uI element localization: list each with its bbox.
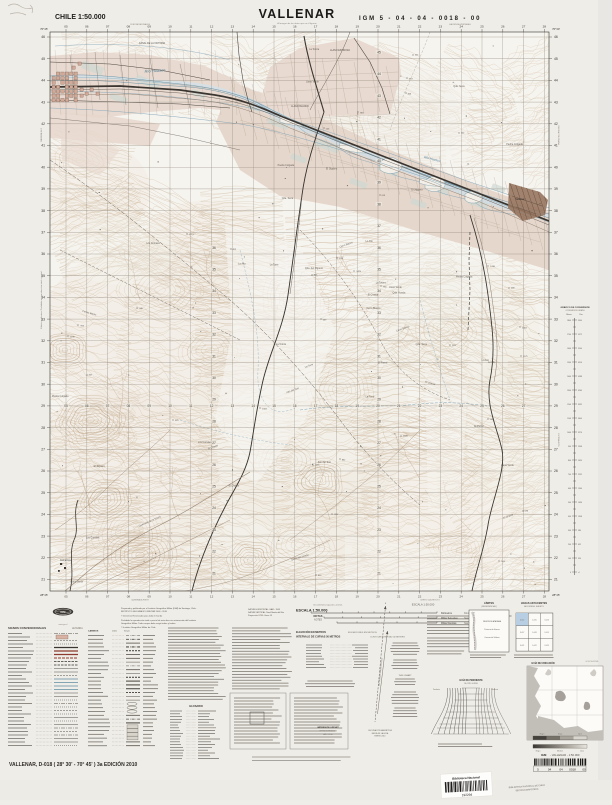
- svg-text:13: 13: [231, 25, 235, 29]
- svg-text:12: 12: [210, 25, 214, 29]
- svg-text:19: 19: [356, 595, 360, 599]
- svg-text:22: 22: [212, 550, 216, 554]
- svg-text:GUÍA DE PENDIENTE: GUÍA DE PENDIENTE: [459, 679, 483, 682]
- svg-text:200: 200: [568, 544, 571, 546]
- svg-text:CAMINOS: CAMINOS: [88, 630, 99, 633]
- svg-text:28: 28: [543, 25, 547, 29]
- svg-text:El Chanar: El Chanar: [229, 485, 240, 488]
- svg-text:Llano Verde: Llano Verde: [306, 80, 319, 83]
- svg-text:D-018: D-018: [532, 632, 536, 634]
- svg-text:400: 400: [568, 516, 571, 518]
- svg-text:24: 24: [554, 513, 558, 517]
- svg-text:21: 21: [41, 578, 45, 582]
- svg-text:19: 19: [355, 25, 359, 29]
- svg-text:07: 07: [106, 404, 110, 408]
- svg-text:37: 37: [41, 231, 45, 235]
- svg-text:Millas Terrestres: Millas Terrestres: [441, 617, 459, 620]
- svg-text:28°45': 28°45': [552, 593, 560, 597]
- svg-text:El Jilguero: El Jilguero: [326, 167, 338, 170]
- svg-text:INSTITUTO GEOGRÁFICO MILITAR 2: INSTITUTO GEOGRÁFICO MILITAR 2009 - 2010: [121, 610, 168, 613]
- svg-text:La Totora: La Totora: [376, 282, 387, 285]
- svg-text:40: 40: [41, 165, 45, 169]
- svg-text:44: 44: [41, 79, 45, 83]
- svg-text:11: 11: [189, 595, 192, 599]
- svg-text:Qda. Seca: Qda. Seca: [416, 343, 428, 346]
- svg-text:16: 16: [293, 404, 297, 408]
- svg-text:ELEVACIONES EN METROS: ELEVACIONES EN METROS: [348, 631, 377, 634]
- svg-text:1800: 1800: [567, 320, 571, 322]
- svg-text:21: 21: [377, 571, 381, 575]
- svg-text:15: 15: [272, 595, 276, 599]
- svg-text:980: 980: [578, 530, 581, 532]
- svg-text:45: 45: [41, 57, 45, 61]
- svg-text:06: 06: [85, 595, 89, 599]
- svg-text:4588: 4588: [578, 376, 582, 378]
- svg-text:ESCALA 1:50.000: ESCALA 1:50.000: [296, 609, 328, 613]
- svg-text:37: 37: [554, 231, 558, 235]
- svg-text:OFFSET PRINTING: OFFSET PRINTING: [319, 731, 337, 733]
- svg-text:Lo Alto: Lo Alto: [482, 359, 490, 362]
- svg-text:06: 06: [85, 25, 89, 29]
- svg-text:70°45': 70°45': [40, 27, 48, 31]
- svg-text:© Derechos Reservados para tod: © Derechos Reservados para todo el mundo: [121, 615, 163, 618]
- svg-text:15: 15: [272, 25, 276, 29]
- svg-text:23: 23: [554, 534, 558, 538]
- svg-text:39: 39: [377, 181, 381, 185]
- svg-text:D-022: D-022: [532, 645, 536, 647]
- svg-text:17: 17: [314, 404, 318, 408]
- svg-text:Doble: Doble: [112, 631, 117, 633]
- svg-text:05: 05: [64, 25, 68, 29]
- svg-text:Kilómetros: Kilómetros: [441, 612, 453, 615]
- svg-text:THIS CHART: THIS CHART: [398, 674, 412, 677]
- svg-text:Negro: Negro: [536, 750, 541, 753]
- svg-text:LLANO ESPINOZA: LLANO ESPINOZA: [330, 49, 350, 52]
- svg-text:23: 23: [439, 595, 443, 599]
- svg-text:CUESTA PAJONALES: CUESTA PAJONALES: [130, 23, 151, 26]
- svg-text:0: 0: [570, 572, 571, 574]
- svg-text:42: 42: [377, 116, 381, 120]
- svg-text:324: 324: [578, 558, 581, 560]
- svg-text:36: 36: [41, 252, 45, 256]
- svg-text:11: 11: [189, 25, 192, 29]
- svg-text:1500: 1500: [567, 362, 571, 364]
- svg-text:ELEVACIÓN EN METROS: ELEVACIÓN EN METROS: [296, 631, 326, 634]
- svg-text:Simple: Simple: [124, 631, 130, 633]
- svg-text:04: 04: [559, 767, 563, 771]
- svg-text:19: 19: [355, 404, 359, 408]
- svg-text:05: 05: [64, 595, 68, 599]
- svg-text:24: 24: [41, 513, 45, 517]
- svg-text:1308: 1308: [578, 516, 582, 518]
- svg-text:27: 27: [522, 595, 526, 599]
- svg-text:Piedra Colgada: Piedra Colgada: [456, 276, 473, 279]
- svg-text:38: 38: [377, 202, 381, 206]
- svg-text:29: 29: [377, 398, 381, 402]
- svg-text:EL TRÁNSITO: EL TRÁNSITO: [557, 434, 560, 447]
- svg-text:42: 42: [41, 122, 45, 126]
- svg-text:0018: 0018: [569, 767, 576, 771]
- svg-text:27: 27: [377, 441, 381, 445]
- svg-text:CARRIZALILLO: CARRIZALILLO: [40, 127, 43, 142]
- svg-text:25: 25: [212, 485, 216, 489]
- svg-text:31: 31: [554, 361, 558, 365]
- svg-text:GUÍA DE UBICACIÓN: GUÍA DE UBICACIÓN: [531, 662, 554, 665]
- svg-text:La Totora: La Totora: [309, 48, 320, 51]
- svg-text:Llano Verde: Llano Verde: [389, 286, 402, 289]
- svg-text:DATUM VERTICAL: Nivel Medio de: DATUM VERTICAL: Nivel Medio del Mar: [248, 611, 284, 614]
- svg-text:NOTES: NOTES: [314, 620, 322, 622]
- svg-text:33: 33: [212, 311, 216, 315]
- svg-text:El Parral: El Parral: [378, 361, 388, 364]
- svg-text:IGM: IGM: [61, 610, 66, 614]
- svg-text:D-023: D-023: [545, 645, 549, 647]
- svg-text:1636: 1636: [578, 502, 582, 504]
- svg-text:SIGNOS CONVENCIONALES: SIGNOS CONVENCIONALES: [8, 626, 46, 630]
- svg-text:27: 27: [554, 448, 558, 452]
- svg-text:12: 12: [210, 404, 214, 408]
- svg-text:2948: 2948: [578, 446, 582, 448]
- svg-text:32: 32: [212, 333, 216, 337]
- svg-text:El Chanar: El Chanar: [368, 293, 379, 296]
- svg-text:25: 25: [480, 404, 484, 408]
- svg-text:IGM 5 - 04 - 04 - 0018 - 00: IGM 5 - 04 - 04 - 0018 - 00: [359, 16, 481, 22]
- svg-text:15: 15: [272, 404, 276, 408]
- svg-text:29: 29: [41, 404, 45, 408]
- svg-text:25: 25: [480, 595, 484, 599]
- svg-text:34: 34: [212, 289, 216, 293]
- svg-text:Geográfico Militar. Toda compr: Geográfico Militar. Toda compra debe exi…: [121, 622, 176, 625]
- svg-text:5900: 5900: [578, 320, 582, 322]
- svg-text:Camarones: Camarones: [60, 559, 73, 562]
- svg-text:45: 45: [377, 51, 381, 55]
- svg-text:CONTOUR INTERVAL 50 METERS: CONTOUR INTERVAL 50 METERS: [370, 636, 405, 639]
- svg-text:40: 40: [377, 159, 381, 163]
- svg-text:28°45': 28°45': [40, 593, 48, 597]
- svg-text:25: 25: [41, 491, 45, 495]
- svg-text:25: 25: [480, 25, 484, 29]
- svg-text:Provincia de Huasco: Provincia de Huasco: [484, 628, 500, 631]
- svg-text:652: 652: [578, 544, 581, 546]
- svg-text:17: 17: [314, 595, 318, 599]
- svg-text:Qda. Honda: Qda. Honda: [392, 292, 406, 295]
- svg-text:Al margen de los datos que en: Al margen de los datos que en él figuran: [277, 22, 317, 25]
- svg-text:24: 24: [460, 595, 464, 599]
- svg-text:DECLINACIÓN MAGNÉTICA: DECLINACIÓN MAGNÉTICA: [368, 729, 392, 732]
- svg-text:SLOPE GUIDE: SLOPE GUIDE: [464, 683, 478, 685]
- svg-text:38: 38: [41, 209, 45, 213]
- svg-text:30: 30: [41, 382, 45, 386]
- svg-text:D-021: D-021: [520, 645, 524, 647]
- svg-text:La Totora: La Totora: [276, 343, 287, 346]
- svg-text:Cerro Blanco: Cerro Blanco: [366, 307, 381, 310]
- svg-text:Edición preliminar. Prohibida: Edición preliminar. Prohibida su reprodu…: [40, 271, 43, 329]
- svg-text:28: 28: [554, 426, 558, 430]
- svg-text:2292: 2292: [578, 474, 582, 476]
- svg-text:70°30': 70°30': [552, 27, 560, 31]
- svg-text:26: 26: [554, 469, 558, 473]
- svg-text:13: 13: [231, 595, 235, 599]
- svg-text:1964: 1964: [578, 488, 582, 490]
- svg-text:25: 25: [377, 485, 381, 489]
- svg-text:IMPRESIÓN OFFSET: IMPRESIÓN OFFSET: [317, 726, 339, 729]
- svg-text:16: 16: [293, 25, 297, 29]
- svg-text:1600: 1600: [567, 348, 571, 350]
- svg-text:28: 28: [212, 419, 216, 423]
- svg-text:Llano Verde: Llano Verde: [501, 464, 514, 467]
- svg-text:00: 00: [582, 767, 586, 771]
- svg-text:900: 900: [568, 446, 571, 448]
- svg-text:Qda. del Jilguero: Qda. del Jilguero: [305, 267, 324, 270]
- svg-text:10: 10: [168, 595, 172, 599]
- svg-text:46: 46: [41, 35, 45, 39]
- svg-text:HOJAS ADYACENTES: HOJAS ADYACENTES: [521, 602, 548, 605]
- svg-text:Llano Verde: Llano Verde: [70, 581, 83, 584]
- svg-text:34: 34: [554, 296, 558, 300]
- svg-text:5244: 5244: [578, 348, 582, 350]
- svg-text:39: 39: [554, 187, 558, 191]
- svg-text:22: 22: [41, 556, 45, 560]
- svg-text:14: 14: [251, 404, 255, 408]
- svg-text:33: 33: [554, 317, 558, 321]
- svg-text:31: 31: [377, 354, 381, 358]
- svg-text:- VALLENAR - 1:50.000: - VALLENAR - 1:50.000: [550, 753, 580, 757]
- svg-text:28: 28: [377, 419, 381, 423]
- svg-text:24: 24: [377, 506, 381, 510]
- svg-text:1000: 1000: [567, 432, 571, 434]
- svg-text:Los Corrales: Los Corrales: [198, 441, 212, 444]
- svg-text:18: 18: [335, 404, 339, 408]
- svg-text:700: 700: [568, 474, 571, 476]
- svg-text:1100: 1100: [567, 418, 571, 420]
- svg-text:27: 27: [41, 448, 45, 452]
- svg-text:1400: 1400: [567, 376, 571, 378]
- svg-text:CERRO CACHIYUYO: CERRO CACHIYUYO: [420, 599, 440, 602]
- svg-text:20: 20: [376, 25, 380, 29]
- svg-text:LÍMITES: LÍMITES: [484, 602, 494, 605]
- svg-text:40: 40: [554, 165, 558, 169]
- svg-text:26: 26: [501, 25, 505, 29]
- svg-text:23: 23: [377, 528, 381, 532]
- svg-text:36: 36: [212, 246, 216, 250]
- svg-text:11: 11: [189, 404, 193, 408]
- svg-text:32: 32: [554, 339, 558, 343]
- svg-text:IGM: IGM: [541, 753, 547, 757]
- svg-text:27: 27: [522, 404, 526, 408]
- svg-text:29: 29: [212, 398, 216, 402]
- svg-text:Los Corrales: Los Corrales: [146, 242, 160, 245]
- svg-text:31: 31: [41, 361, 45, 365]
- svg-text:Pies: Pies: [579, 314, 582, 316]
- svg-text:45: 45: [554, 57, 558, 61]
- svg-text:MEDIA DE LA HOJA: MEDIA DE LA HOJA: [372, 732, 389, 735]
- svg-text:LLANO BLANCO: LLANO BLANCO: [291, 105, 309, 108]
- svg-text:32: 32: [377, 333, 381, 337]
- svg-text:30: 30: [377, 376, 381, 380]
- svg-text:800: 800: [568, 460, 571, 462]
- svg-text:500: 500: [568, 502, 571, 504]
- svg-text:El Jilguero: El Jilguero: [94, 465, 106, 468]
- svg-text:DATUM HORIZONTAL: SAM - 1969: DATUM HORIZONTAL: SAM - 1969: [248, 608, 281, 611]
- svg-text:HACIENDA VENTANAS: HACIENDA VENTANAS: [449, 23, 471, 26]
- svg-text:Piedra Colgada: Piedra Colgada: [52, 395, 69, 398]
- svg-text:Proyección UTM - Huso 19: Proyección UTM - Huso 19: [248, 615, 273, 617]
- svg-text:LEYENDA: LEYENDA: [72, 627, 83, 630]
- svg-text:600: 600: [568, 488, 571, 490]
- svg-text:25: 25: [554, 491, 558, 495]
- svg-text:INTERVALO DE CURVAS 50 METROS: INTERVALO DE CURVAS 50 METROS: [296, 636, 341, 639]
- svg-text:35: 35: [554, 274, 558, 278]
- svg-text:Los Corrales: Los Corrales: [86, 537, 100, 540]
- svg-text:13: 13: [231, 404, 235, 408]
- svg-text:La Torre: La Torre: [270, 263, 279, 266]
- svg-text:26: 26: [41, 469, 45, 473]
- svg-text:La Torre: La Torre: [366, 395, 375, 398]
- svg-text:24: 24: [459, 404, 463, 408]
- svg-text:16: 16: [293, 595, 297, 599]
- svg-text:14: 14: [252, 595, 256, 599]
- svg-text:07: 07: [106, 595, 110, 599]
- svg-text:18: 18: [335, 595, 339, 599]
- svg-text:© Instituto Geográfico Militar: © Instituto Geográfico Militar de Chile: [121, 626, 156, 629]
- svg-text:08: 08: [127, 595, 131, 599]
- svg-text:09: 09: [148, 595, 152, 599]
- svg-text:46: 46: [554, 35, 558, 39]
- svg-text:26: 26: [501, 595, 505, 599]
- svg-text:26: 26: [212, 463, 216, 467]
- svg-text:31: 31: [212, 354, 216, 358]
- svg-text:Piedra Colgada: Piedra Colgada: [506, 143, 523, 146]
- svg-text:Qda. Seca: Qda. Seca: [282, 197, 294, 200]
- svg-text:29: 29: [554, 404, 558, 408]
- svg-text:30: 30: [554, 382, 558, 386]
- svg-text:Un centímetro equivale a 0,5 k: Un centímetro equivale a 0,5 km.: [313, 604, 343, 607]
- svg-text:3276: 3276: [578, 432, 582, 434]
- svg-text:35: 35: [212, 268, 216, 272]
- svg-text:D-017: D-017: [520, 632, 524, 634]
- svg-text:06: 06: [85, 404, 89, 408]
- svg-text:(REFERENCIAL): (REFERENCIAL): [481, 605, 497, 608]
- svg-text:100: 100: [568, 558, 571, 560]
- svg-text:07: 07: [106, 25, 110, 29]
- svg-text:21: 21: [397, 25, 401, 29]
- svg-text:10: 10: [168, 25, 172, 29]
- svg-text:30: 30: [212, 376, 216, 380]
- svg-text:21: 21: [397, 404, 401, 408]
- svg-text:-4: -4: [578, 572, 580, 574]
- svg-text:22: 22: [554, 556, 558, 560]
- svg-text:28: 28: [41, 426, 45, 430]
- svg-text:Piedra Colgada: Piedra Colgada: [278, 164, 295, 167]
- svg-text:VALLENAR: VALLENAR: [259, 7, 336, 21]
- svg-text:32: 32: [41, 339, 45, 343]
- svg-text:39: 39: [41, 187, 45, 191]
- svg-text:Claro: Claro: [580, 750, 584, 753]
- svg-text:ADJOINING SHEETS: ADJOINING SHEETS: [524, 605, 544, 608]
- svg-text:44: 44: [377, 72, 381, 76]
- svg-text:08: 08: [127, 404, 131, 408]
- svg-text:Qda. Seca: Qda. Seca: [453, 85, 465, 88]
- svg-text:1200: 1200: [567, 404, 571, 406]
- svg-text:CONVERSION GRAPH: CONVERSION GRAPH: [566, 309, 586, 312]
- svg-text:Preparado y publicado por el I: Preparado y publicado por el Instituto G…: [121, 607, 197, 610]
- svg-text:5572: 5572: [578, 334, 582, 336]
- svg-text:Alto del Toro: Alto del Toro: [318, 461, 332, 464]
- svg-text:Negro: Negro: [540, 733, 545, 736]
- svg-text:Metros: Metros: [566, 313, 571, 316]
- svg-text:D-016: D-016: [545, 619, 549, 621]
- svg-text:CHILE 1:50.000: CHILE 1:50.000: [55, 14, 106, 21]
- svg-text:20: 20: [376, 404, 380, 408]
- svg-text:36: 36: [554, 252, 558, 256]
- svg-text:4916: 4916: [578, 362, 582, 364]
- svg-text:23: 23: [439, 25, 443, 29]
- svg-text:El Jilguero: El Jilguero: [411, 189, 423, 192]
- svg-text:41: 41: [41, 144, 45, 148]
- svg-text:26: 26: [501, 404, 505, 408]
- svg-text:Prohibida la reproducción tota: Prohibida la reproducción total o parcia…: [121, 619, 197, 622]
- svg-text:14: 14: [251, 25, 255, 29]
- svg-text:ENERO 2010: ENERO 2010: [375, 736, 386, 738]
- svg-text:23: 23: [439, 404, 443, 408]
- svg-text:36: 36: [377, 246, 381, 250]
- svg-text:43: 43: [41, 100, 45, 104]
- svg-text:Comuna de Vallenar: Comuna de Vallenar: [484, 636, 500, 639]
- svg-text:22: 22: [418, 25, 422, 29]
- svg-text:300: 300: [568, 530, 571, 532]
- svg-text:41: 41: [377, 137, 381, 141]
- svg-text:D-019: D-019: [545, 632, 549, 634]
- svg-text:18: 18: [335, 25, 339, 29]
- svg-text:05: 05: [64, 404, 68, 408]
- svg-text:Lo Alto: Lo Alto: [365, 240, 373, 243]
- svg-text:22: 22: [418, 404, 422, 408]
- svg-text:23: 23: [212, 528, 216, 532]
- svg-text:ESCALA 1:50.000: ESCALA 1:50.000: [412, 603, 435, 607]
- svg-text:27: 27: [522, 25, 526, 29]
- svg-text:26: 26: [377, 463, 381, 467]
- svg-text:35: 35: [377, 268, 381, 272]
- svg-text:23: 23: [41, 534, 45, 538]
- svg-text:192294: 192294: [462, 793, 473, 798]
- svg-text:Lo Alto: Lo Alto: [238, 262, 246, 265]
- svg-text:REGIÓN DE ATACAMA: REGIÓN DE ATACAMA: [483, 620, 502, 623]
- svg-text:2620: 2620: [578, 460, 582, 462]
- svg-text:1700: 1700: [567, 334, 571, 336]
- svg-text:GRÁFICO DE CONVERSIÓN: GRÁFICO DE CONVERSIÓN: [560, 306, 589, 309]
- svg-text:28: 28: [543, 595, 547, 599]
- svg-text:10: 10: [168, 404, 172, 408]
- svg-text:D-014: D-014: [520, 619, 524, 621]
- svg-text:24: 24: [212, 506, 216, 510]
- svg-text:04: 04: [548, 767, 552, 771]
- svg-text:www.igm.cl: www.igm.cl: [59, 624, 69, 626]
- svg-text:GLOSARIO: GLOSARIO: [189, 704, 203, 708]
- svg-text:21: 21: [212, 571, 216, 575]
- svg-text:NOTAS: NOTAS: [314, 614, 323, 618]
- svg-text:QUEBRADA PINTE: QUEBRADA PINTE: [131, 599, 149, 602]
- svg-text:21: 21: [397, 595, 401, 599]
- svg-text:CANAL DE LA VICTORIA: CANAL DE LA VICTORIA: [139, 42, 166, 45]
- svg-text:09: 09: [147, 404, 151, 408]
- svg-text:4260: 4260: [578, 390, 582, 392]
- svg-text:VALLENAR, D-018 ( 28° 30' - 70: VALLENAR, D-018 ( 28° 30' - 70° 45' ) 3a…: [9, 760, 137, 768]
- svg-text:17: 17: [314, 25, 318, 29]
- svg-text:Sepia: Sepia: [558, 734, 562, 736]
- svg-text:22: 22: [377, 550, 381, 554]
- svg-text:AÑO 2010: AÑO 2010: [323, 733, 333, 736]
- svg-text:33: 33: [377, 311, 381, 315]
